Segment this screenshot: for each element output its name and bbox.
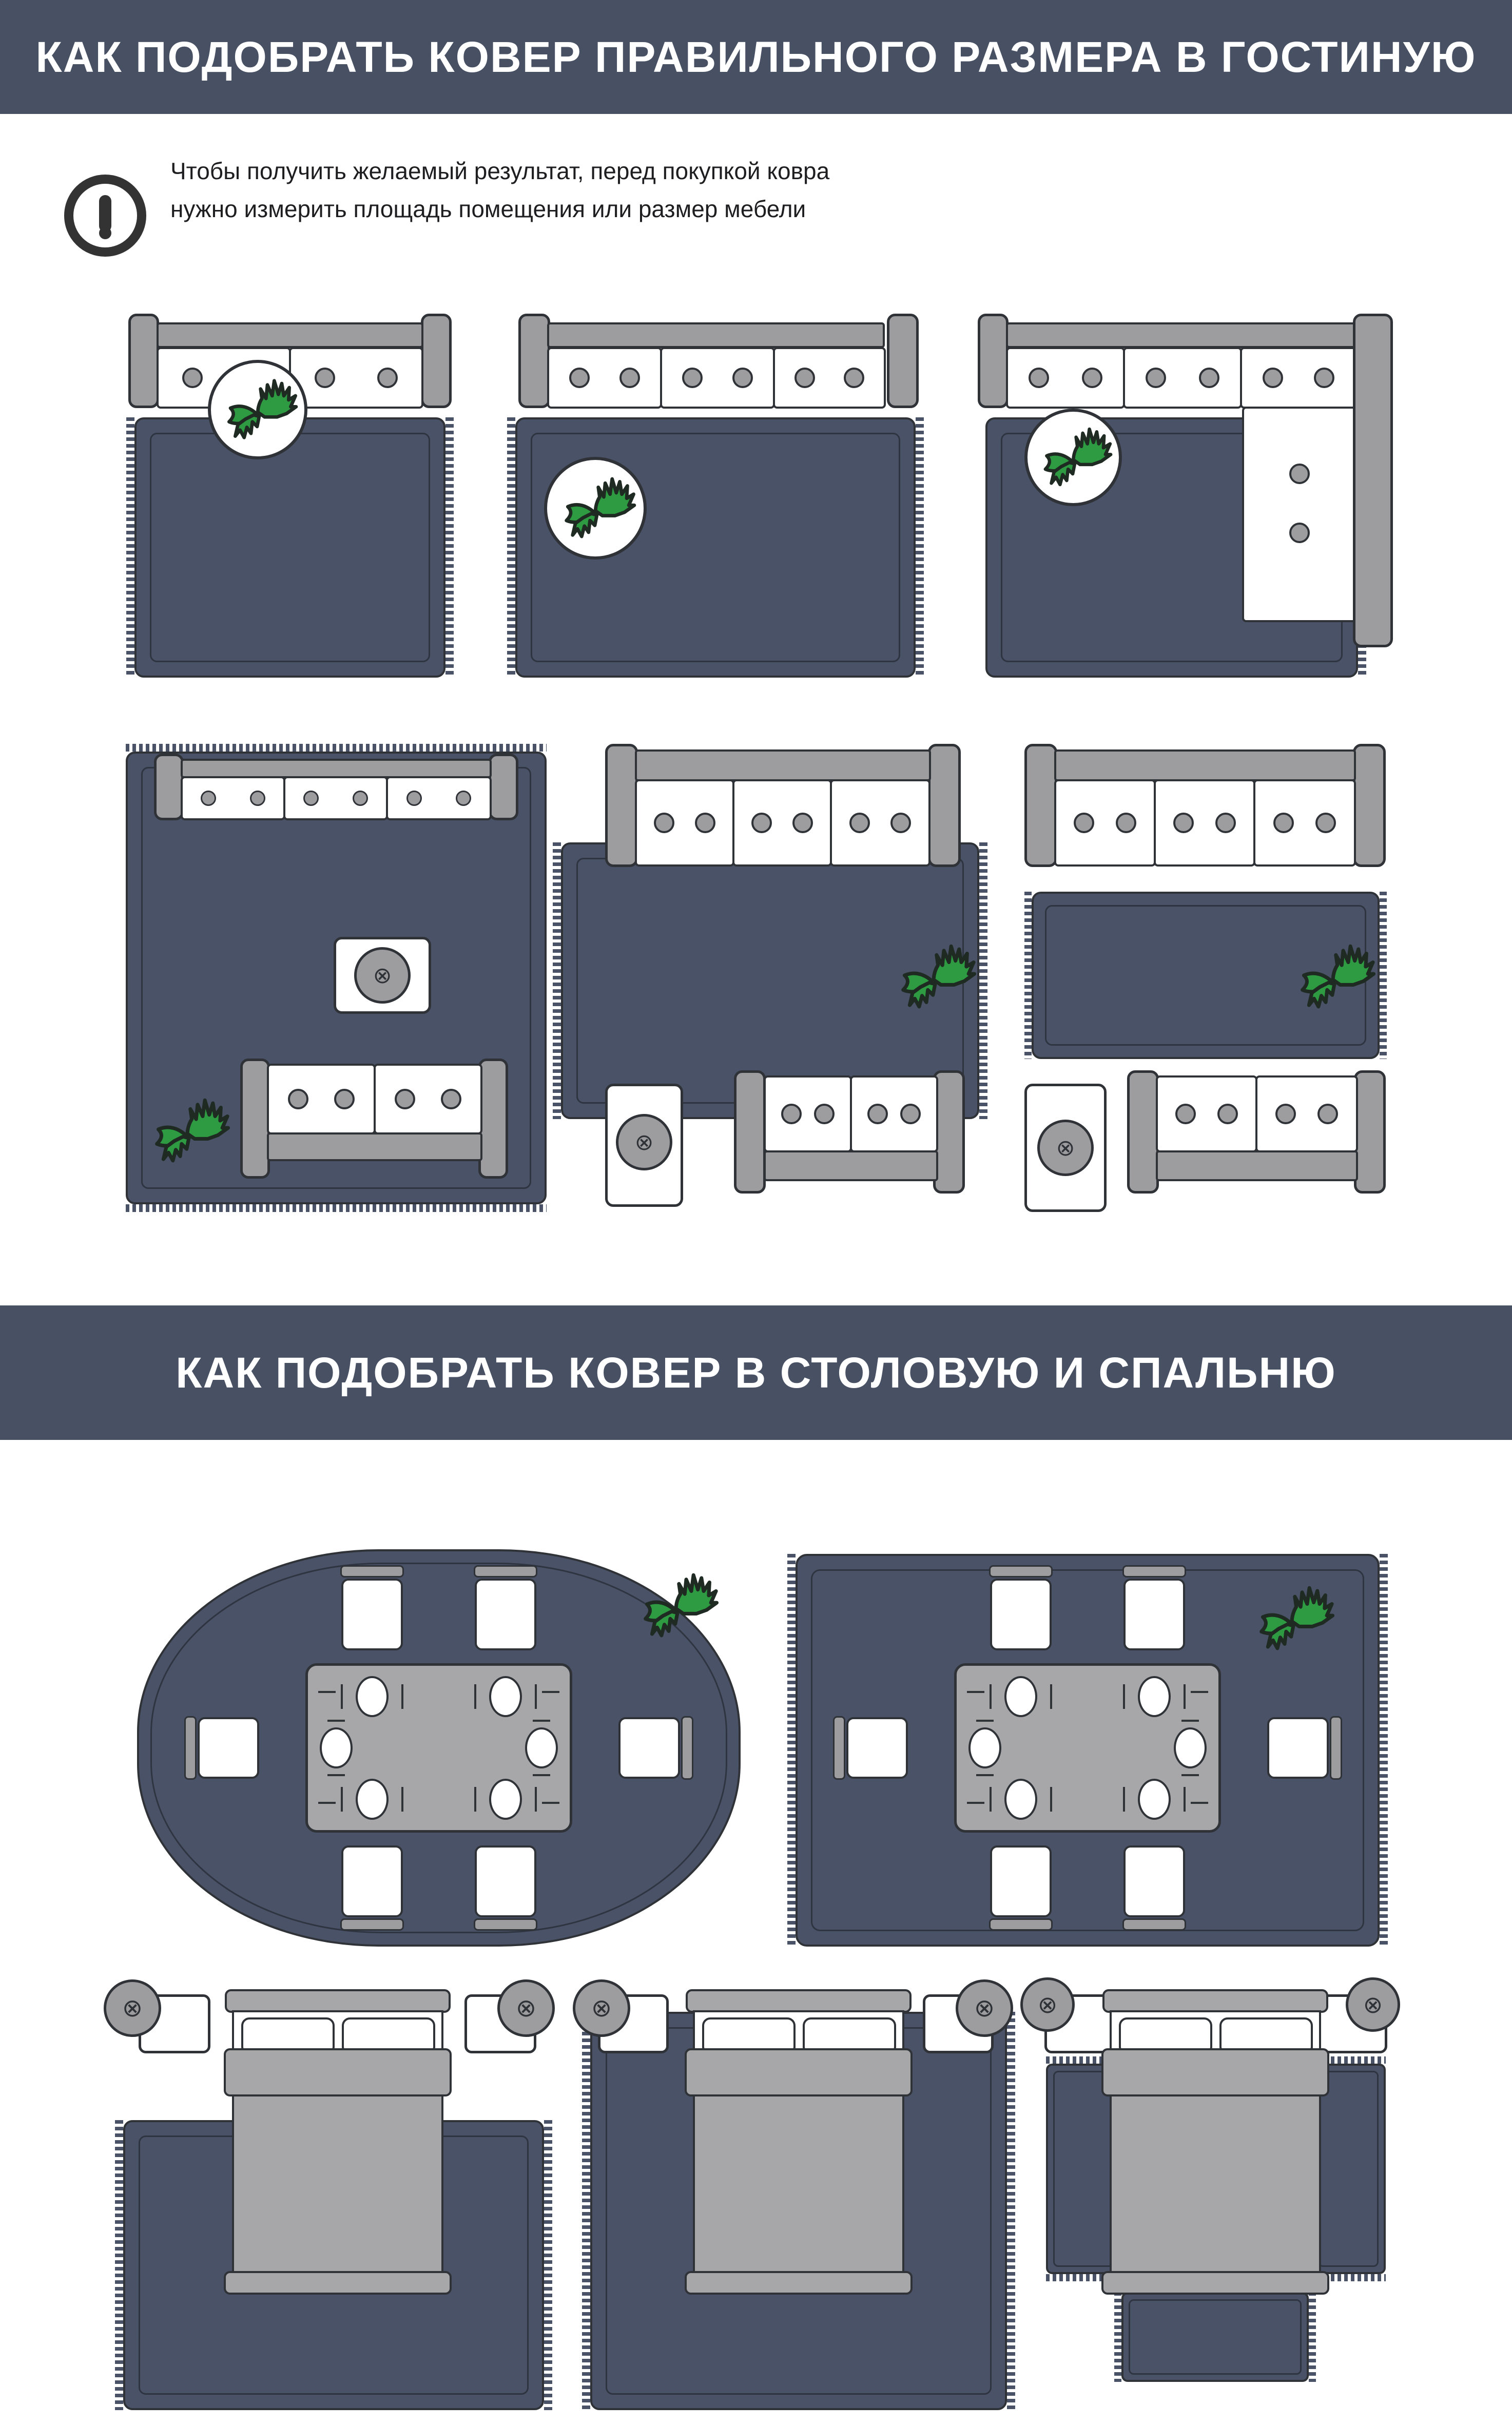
alert-icon-dot <box>99 227 111 239</box>
cutlery-line <box>535 1684 537 1709</box>
cutlery-line <box>533 1774 550 1776</box>
rug-fringe <box>126 1204 547 1212</box>
rug-fringe <box>507 417 515 678</box>
lamp-cross: ⊗ <box>974 1994 995 2023</box>
chair-back <box>340 1565 404 1577</box>
bed-duvet-fold <box>685 2048 913 2096</box>
rug-fringe <box>126 417 134 678</box>
pillow <box>1119 2017 1212 2051</box>
header-living-room: КАК ПОДОБРАТЬ КОВЕР ПРАВИЛЬНОГО РАЗМЕРА … <box>0 0 1512 114</box>
cutlery-line <box>976 1720 994 1722</box>
table-cross-icon: ⊗ <box>1056 1135 1075 1161</box>
lamp-icon: ⊗ <box>1020 1977 1075 2032</box>
sofa-arm <box>887 314 919 408</box>
chair-back <box>989 1918 1053 1931</box>
lamp-cross: ⊗ <box>591 1994 612 2023</box>
sofa-arm <box>1353 744 1386 867</box>
sofa-arm <box>928 744 961 867</box>
cutlery-line <box>1123 1684 1125 1709</box>
chair <box>990 1579 1052 1650</box>
plant-icon <box>1291 932 1378 1019</box>
sofa-seat <box>1154 779 1255 867</box>
cutlery-line <box>990 1684 992 1709</box>
table-cross-icon: ⊗ <box>373 963 392 989</box>
bed-duvet <box>232 2094 443 2273</box>
rug-fringe <box>1007 2012 1015 2410</box>
plate <box>1004 1779 1037 1820</box>
sofa-seat <box>1123 347 1242 409</box>
sofa-seat <box>660 347 775 409</box>
lamp-icon: ⊗ <box>497 1979 555 2037</box>
rug-inner-line <box>1053 2071 1114 2267</box>
sofa-back <box>157 322 423 348</box>
sofa-seat <box>764 1075 852 1152</box>
bed-footer <box>224 2271 452 2295</box>
chair-back <box>474 1918 537 1931</box>
plant-icon <box>145 1086 232 1173</box>
pillow <box>1219 2017 1313 2051</box>
lamp-icon: ⊗ <box>956 1979 1013 2037</box>
cutlery-line <box>1191 1802 1208 1804</box>
sofa-seat <box>1255 1075 1358 1152</box>
cutlery-line <box>318 1802 336 1804</box>
sofa-back <box>267 1132 482 1161</box>
coffee-table-top: ⊗ <box>354 947 411 1004</box>
plate <box>356 1676 389 1717</box>
cutlery-line <box>341 1787 343 1812</box>
table-cross-icon: ⊗ <box>635 1129 654 1156</box>
sofa-seat <box>386 776 492 820</box>
plate <box>1174 1727 1207 1768</box>
lamp-icon: ⊗ <box>1346 1977 1400 2032</box>
rug-fringe <box>1380 1554 1388 1947</box>
sofa-seat <box>773 347 886 409</box>
cutlery-line <box>1050 1684 1052 1709</box>
cutlery-line <box>542 1691 559 1693</box>
sofa-arm <box>421 314 452 408</box>
sofa-back <box>1054 749 1356 781</box>
cutlery-line <box>327 1774 345 1776</box>
sofa-arm <box>240 1059 270 1179</box>
cutlery-line <box>318 1691 336 1693</box>
chair-back <box>1122 1565 1186 1577</box>
pillow <box>342 2017 435 2051</box>
sofa-arm <box>518 314 550 408</box>
plate <box>489 1779 522 1820</box>
cutlery-line <box>535 1787 537 1812</box>
cutlery-line <box>990 1787 992 1812</box>
plant-icon <box>634 1561 721 1648</box>
sofa-seat <box>1253 779 1356 867</box>
chair-back <box>833 1716 845 1780</box>
plant-icon <box>1250 1573 1337 1661</box>
plate <box>1138 1676 1171 1717</box>
chair <box>475 1845 536 1917</box>
sofa-back <box>181 759 492 778</box>
sofa-seat <box>635 779 734 867</box>
chair-back <box>184 1716 197 1780</box>
plant-icon <box>891 932 979 1019</box>
rug-fringe <box>115 2120 123 2410</box>
cutlery-line <box>542 1802 559 1804</box>
plate <box>968 1727 1001 1768</box>
rug-inner-line <box>150 433 430 662</box>
sofa-arm <box>154 754 184 820</box>
chair <box>341 1579 403 1650</box>
chair <box>846 1717 908 1779</box>
rug-fringe <box>582 2012 590 2410</box>
sofa-arm <box>1024 744 1057 867</box>
chair <box>475 1579 536 1650</box>
bed-duvet-fold <box>224 2048 452 2096</box>
cutlery-line <box>341 1684 343 1709</box>
pillow <box>241 2017 335 2051</box>
chair <box>618 1717 680 1779</box>
chair-back <box>1330 1716 1342 1780</box>
sofa-arm <box>128 314 159 408</box>
cutlery-line <box>1181 1774 1199 1776</box>
cutlery-line <box>967 1691 984 1693</box>
sofa-seat <box>289 347 423 409</box>
plant-icon <box>1035 416 1115 496</box>
lamp-icon: ⊗ <box>573 1979 630 2037</box>
rug-fringe <box>445 417 454 678</box>
chair-back <box>474 1565 537 1577</box>
page-title: КАК ПОДОБРАТЬ КОВЕР ПРАВИЛЬНОГО РАЗМЕРА … <box>36 32 1477 82</box>
rug-fringe <box>553 842 561 1119</box>
bed-duvet <box>693 2094 904 2273</box>
infographic-carpet-size-guide: КАК ПОДОБРАТЬ КОВЕР ПРАВИЛЬНОГО РАЗМЕРА … <box>0 0 1512 2424</box>
lamp-icon: ⊗ <box>104 1979 161 2037</box>
sofa-seat <box>374 1064 482 1134</box>
chair <box>990 1845 1052 1917</box>
sofa-seat <box>1240 347 1357 409</box>
sofa-chaise-seat <box>1242 407 1357 622</box>
rug-fringe <box>1114 2292 1121 2382</box>
chair-back <box>1122 1918 1186 1931</box>
cutlery-line <box>1181 1720 1199 1722</box>
chair <box>1267 1717 1329 1779</box>
sofa-seat <box>1006 347 1125 409</box>
plate <box>1004 1676 1037 1717</box>
plate <box>525 1727 558 1768</box>
sofa-arm <box>734 1070 766 1194</box>
sofa-arm <box>478 1059 508 1179</box>
sofa-back <box>635 749 931 781</box>
cutlery-line <box>1123 1787 1125 1812</box>
lamp-cross: ⊗ <box>122 1994 143 2023</box>
rug-fringe <box>979 842 987 1119</box>
bed-headboard <box>225 1989 451 2013</box>
sofa-arm <box>1353 314 1393 647</box>
plate <box>1138 1779 1171 1820</box>
cutlery-line <box>401 1787 403 1812</box>
chair-back <box>989 1565 1053 1577</box>
rug-inner-line <box>1129 2299 1302 2375</box>
sofa-seat <box>267 1064 376 1134</box>
bed-duvet-fold <box>1101 2048 1329 2096</box>
rug-fringe <box>787 1554 796 1947</box>
bed-footer <box>1101 2271 1329 2295</box>
cutlery-line <box>1184 1684 1186 1709</box>
plate <box>356 1779 389 1820</box>
rug-fringe <box>1309 2292 1316 2382</box>
cutlery-line <box>474 1684 476 1709</box>
lamp-cross: ⊗ <box>1038 1991 1058 2018</box>
chair <box>1123 1845 1185 1917</box>
bed-headboard <box>1102 1989 1328 2013</box>
cutlery-line <box>474 1787 476 1812</box>
cutlery-line <box>1050 1787 1052 1812</box>
bed-duvet <box>1110 2094 1321 2273</box>
sofa-seat <box>181 776 285 820</box>
coffee-table-top: ⊗ <box>616 1114 672 1170</box>
cutlery-line <box>533 1720 550 1722</box>
sofa-seat <box>1156 1075 1257 1152</box>
note-text-line2: нужно измерить площадь помещения или раз… <box>170 190 806 228</box>
chair <box>341 1845 403 1917</box>
bed-footer <box>685 2271 913 2295</box>
sofa-arm <box>1354 1070 1386 1194</box>
pillow <box>803 2017 896 2051</box>
sofa-arm <box>605 744 638 867</box>
pillow <box>702 2017 796 2051</box>
alert-icon <box>64 175 146 257</box>
rug-fringe <box>1380 892 1387 1059</box>
chair <box>1123 1579 1185 1650</box>
chair <box>198 1717 259 1779</box>
cutlery-line <box>1184 1787 1186 1812</box>
cutlery-line <box>976 1774 994 1776</box>
plate <box>320 1727 353 1768</box>
section-title: КАК ПОДОБРАТЬ КОВЕР В СТОЛОВУЮ И СПАЛЬНЮ <box>176 1348 1336 1398</box>
sofa-seat <box>732 779 832 867</box>
chair-back <box>340 1918 404 1931</box>
chair-back <box>681 1716 693 1780</box>
sofa-seat <box>830 779 931 867</box>
sofa-seat <box>547 347 662 409</box>
sofa-back <box>1156 1150 1358 1181</box>
rug-fringe <box>126 744 547 752</box>
cutlery-line <box>967 1802 984 1804</box>
sofa-back <box>764 1150 938 1181</box>
coffee-table-top: ⊗ <box>1037 1120 1094 1176</box>
sofa-arm <box>489 754 518 820</box>
sofa-seat <box>1054 779 1156 867</box>
rug-fringe <box>916 417 924 678</box>
plant-icon <box>555 465 638 548</box>
sofa-seat <box>283 776 388 820</box>
cutlery-line <box>327 1720 345 1722</box>
plate <box>489 1676 522 1717</box>
bed-headboard <box>686 1989 912 2013</box>
sofa-back <box>1006 322 1357 348</box>
lamp-cross: ⊗ <box>1363 1991 1383 2018</box>
sofa-arm <box>978 314 1009 408</box>
header-dining-bedroom: КАК ПОДОБРАТЬ КОВЕР В СТОЛОВУЮ И СПАЛЬНЮ <box>0 1305 1512 1440</box>
rug-fringe <box>544 2120 552 2410</box>
sofa-seat <box>850 1075 938 1152</box>
cutlery-line <box>1191 1691 1208 1693</box>
rug-inner-line <box>1318 2071 1379 2267</box>
sofa-arm <box>1127 1070 1159 1194</box>
sofa-back <box>547 322 885 348</box>
plant-icon <box>218 367 300 449</box>
note-text-line1: Чтобы получить желаемый результат, перед… <box>170 152 829 190</box>
lamp-cross: ⊗ <box>516 1994 536 2023</box>
cutlery-line <box>401 1684 403 1709</box>
rug-fringe <box>1024 892 1032 1059</box>
